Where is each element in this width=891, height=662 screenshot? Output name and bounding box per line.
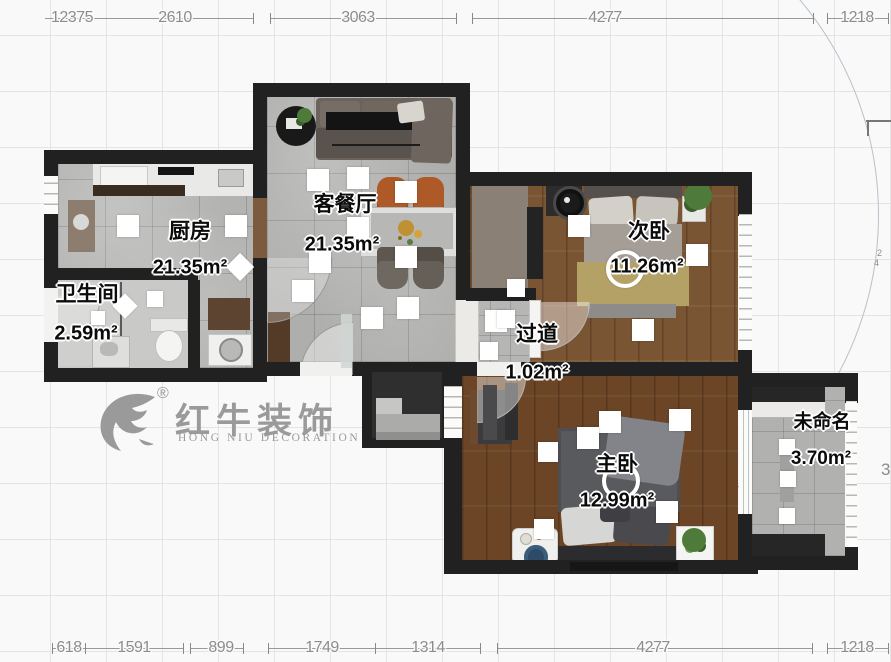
bed2-right-wall [738, 172, 752, 216]
dimension-tick [497, 643, 498, 654]
bedroom2-label: 次卧 [628, 215, 670, 245]
bed2-wardrobe [527, 207, 543, 279]
dimension-label-bottom: 1749 [305, 639, 339, 657]
unnamed-bottom-wall [745, 556, 858, 570]
kitchen-window [44, 176, 58, 214]
nightstand-lamp [520, 533, 532, 545]
balcony-sliding-door [739, 410, 752, 514]
bathroom-area: 2.59m² [54, 323, 117, 346]
dimension-tick [52, 643, 53, 654]
dimension-tick [888, 643, 889, 654]
dimension-line [52, 648, 183, 649]
dimension-tick [827, 643, 828, 654]
edge-fragment: 2 [877, 248, 882, 258]
edge-fragment: 4 [874, 258, 879, 268]
dimension-tick [85, 643, 86, 654]
master-unnamed-wall [738, 514, 752, 562]
master-door-leaf [483, 385, 497, 440]
dimension-label-bottom: 899 [208, 639, 233, 657]
side-vanity-sink [73, 214, 89, 230]
logo-en: HONG NIU DECORATION [178, 432, 360, 444]
unnamed-right-wall [845, 373, 858, 403]
dimension-tick [190, 643, 191, 654]
dimension-tick [183, 643, 184, 654]
living-bottom-wall [253, 362, 300, 376]
balcony-cabinet-bottom [752, 534, 825, 556]
hallway-area: 1.02m² [505, 362, 568, 385]
unnamed-area: 3.70m² [791, 448, 851, 470]
cooktop [158, 167, 194, 175]
living-right-wall [456, 97, 470, 300]
bed2-round-rug [553, 186, 587, 220]
kitchen-door-panel [253, 198, 267, 258]
centerpiece-flowers [398, 220, 414, 236]
living-label: 客餐厅 [314, 188, 377, 218]
bed2-top-wall [456, 172, 752, 186]
nightstand-item [536, 534, 542, 540]
watermark-logo: ® 红牛装饰 HONG NIU DECORATION [95, 385, 335, 455]
entry-door-glass [341, 314, 352, 368]
wall [55, 150, 267, 164]
plant-living [297, 108, 312, 123]
edge-tick-artifact [866, 120, 891, 122]
bull-logo-icon [95, 391, 163, 453]
edge-fragment: 3 [881, 460, 890, 480]
hall-bed2-stub-wall [466, 288, 536, 301]
dimension-tick [268, 643, 269, 654]
master-label: 主卧 [596, 448, 638, 478]
dimension-line [270, 18, 456, 19]
master-area: 12.99m² [580, 490, 655, 513]
dining-chair-bottom-left [377, 247, 408, 289]
kitchen-sink [218, 169, 244, 187]
dimension-line [497, 648, 812, 649]
master-top-wall-stub [462, 362, 477, 376]
dimension-label-top: 12375 [51, 9, 93, 27]
floor-plan-canvas: 厨房 21.35m² 卫生间 2.59m² 客餐厅 21.35m² 次卧 11.… [0, 0, 891, 662]
stair-step-2 [376, 414, 440, 432]
bedroom2-area: 11.26m² [610, 256, 683, 279]
wall [44, 150, 58, 178]
wall [44, 368, 267, 382]
dimension-line [827, 648, 888, 649]
bed2-closet [472, 186, 528, 288]
dimension-label-top: 3063 [341, 9, 375, 27]
dimension-tick [480, 643, 481, 654]
living-top-wall [253, 83, 470, 97]
dimension-line [45, 18, 253, 19]
bed2-rug-dot [564, 197, 570, 203]
dimension-label-bottom: 618 [56, 639, 81, 657]
living-area: 21.35m² [305, 234, 380, 257]
plant-bed2 [684, 182, 712, 210]
edge-tick-artifact [867, 120, 869, 136]
plant-master [682, 528, 706, 552]
living-left-wall [253, 258, 267, 362]
bath-divider-wall [188, 280, 200, 368]
dimension-label-bottom: 4277 [636, 639, 670, 657]
hallway-threshold [455, 300, 479, 362]
dimension-label-bottom: 1218 [840, 639, 874, 657]
dimension-label-bottom: 1314 [411, 639, 445, 657]
master-tv [570, 562, 678, 571]
washer-drum [219, 338, 243, 362]
master-entry-side-door [444, 386, 462, 438]
wall [44, 214, 58, 288]
stair-step-1 [376, 398, 402, 414]
kitchen-nook-cabinet [208, 298, 250, 330]
sofa-edge-line [332, 144, 420, 146]
hallway-label: 过道 [516, 318, 558, 348]
toilet-bowl [155, 330, 183, 362]
dimension-tick [253, 13, 254, 24]
bed2-window [739, 214, 752, 350]
bed2-headboard [584, 186, 682, 198]
dining-chair-bottom-right [413, 247, 444, 289]
kitchen-dark-cabinet [93, 185, 185, 196]
dimension-tick [243, 643, 244, 654]
dimension-tick [456, 13, 457, 24]
dimension-tick [375, 643, 376, 654]
dimension-label-top: 2610 [158, 9, 192, 27]
dimension-label-bottom: 1591 [117, 639, 151, 657]
kitchen-label: 厨房 [169, 215, 211, 245]
dimension-tick [812, 643, 813, 654]
bed2-bench [588, 304, 676, 318]
dimension-line [268, 648, 480, 649]
bathroom-label: 卫生间 [56, 278, 119, 308]
balcony-cabinet-top [752, 385, 825, 403]
registered-mark: ® [157, 385, 169, 403]
dimension-tick [888, 13, 889, 24]
master-left-wall [444, 438, 462, 572]
stair-step-3 [376, 432, 440, 440]
living-left-wall [253, 83, 267, 198]
unnamed-top-wall [745, 373, 858, 387]
master-unnamed-wall [738, 376, 752, 410]
dimension-line [190, 648, 243, 649]
dimension-tick [270, 13, 271, 24]
kitchen-area: 21.35m² [153, 257, 228, 280]
unnamed-label: 未命名 [793, 407, 850, 434]
dimension-tick [472, 13, 473, 24]
sofa-pillow [397, 100, 426, 123]
